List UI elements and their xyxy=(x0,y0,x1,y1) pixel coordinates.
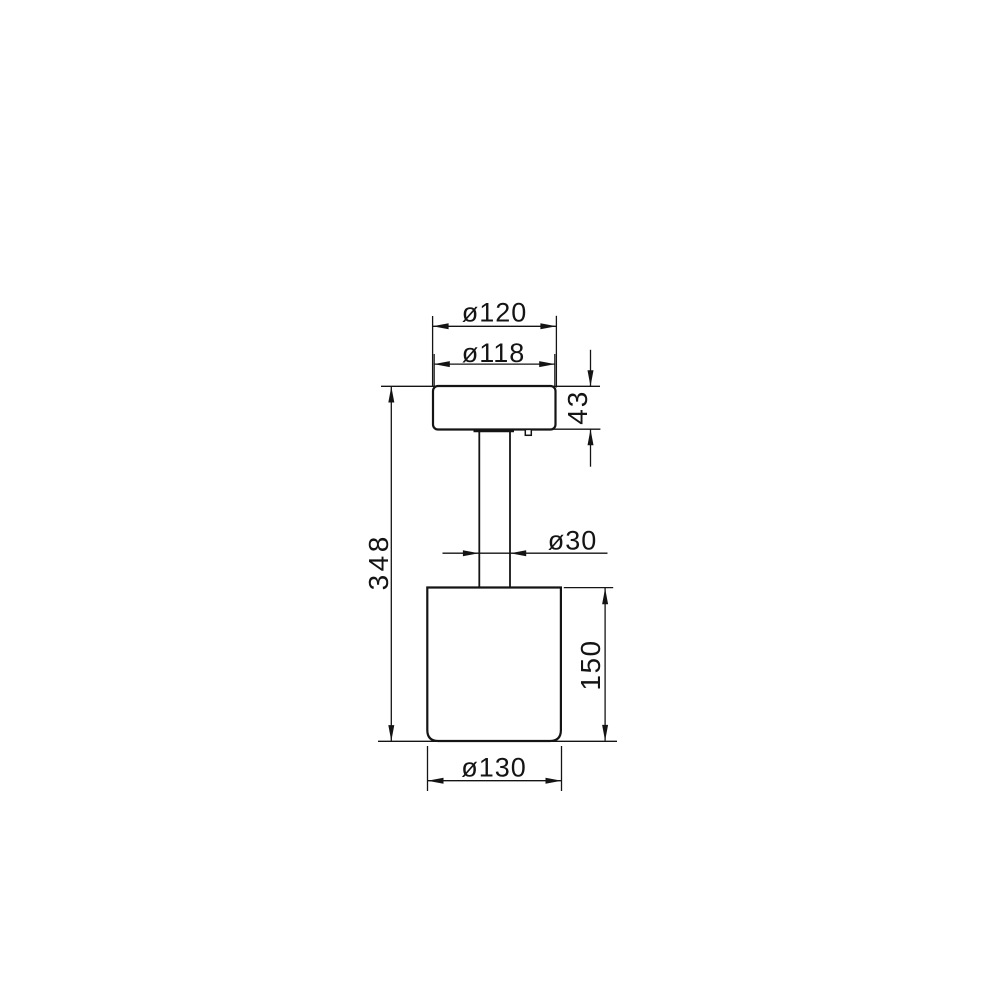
svg-text:348: 348 xyxy=(363,533,394,590)
svg-text:ø118: ø118 xyxy=(462,338,526,368)
svg-text:ø120: ø120 xyxy=(462,298,528,328)
svg-text:ø30: ø30 xyxy=(548,526,598,556)
svg-text:ø130: ø130 xyxy=(461,752,527,782)
svg-text:43: 43 xyxy=(562,390,593,425)
svg-text:150: 150 xyxy=(575,639,606,690)
